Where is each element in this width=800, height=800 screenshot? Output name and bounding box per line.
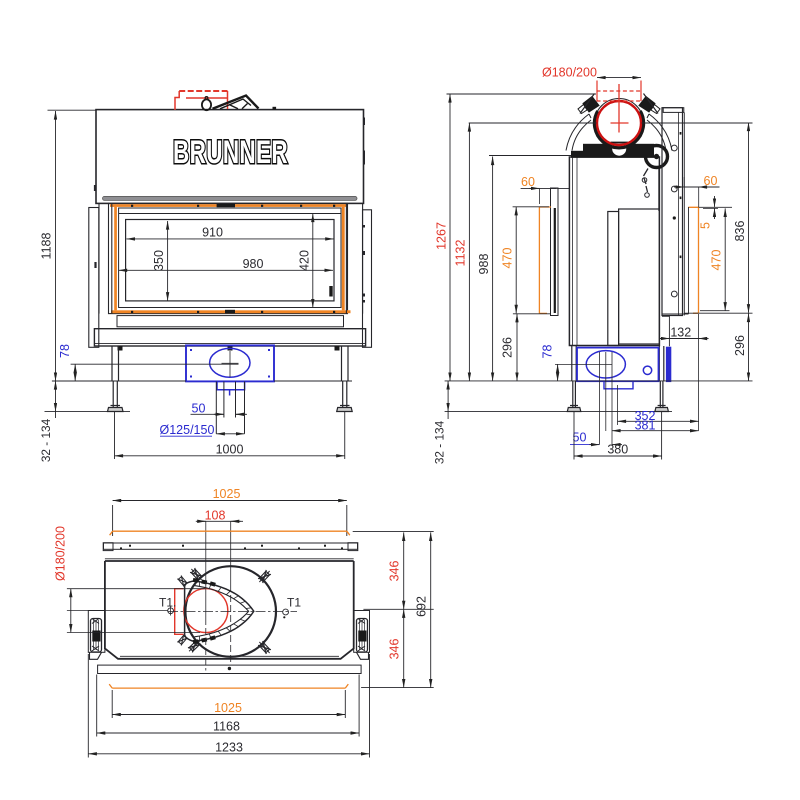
svg-text:T1.: T1. bbox=[159, 596, 176, 610]
svg-text:692: 692 bbox=[414, 596, 428, 617]
svg-text:1233: 1233 bbox=[215, 740, 243, 754]
svg-text:Ø180/200: Ø180/200 bbox=[542, 66, 597, 80]
svg-text:1188: 1188 bbox=[40, 233, 54, 260]
svg-text:380: 380 bbox=[607, 443, 628, 457]
svg-text:470: 470 bbox=[710, 250, 724, 271]
svg-text:296: 296 bbox=[733, 335, 747, 356]
svg-text:980: 980 bbox=[243, 257, 264, 271]
svg-text:346: 346 bbox=[387, 561, 401, 582]
svg-text:78: 78 bbox=[58, 344, 72, 358]
svg-text:988: 988 bbox=[477, 254, 491, 275]
svg-text:1025: 1025 bbox=[213, 487, 241, 501]
svg-text:296: 296 bbox=[501, 337, 515, 358]
svg-text:BRUNNER: BRUNNER bbox=[173, 134, 288, 170]
svg-text:50: 50 bbox=[192, 402, 206, 416]
svg-text:346: 346 bbox=[387, 639, 401, 660]
svg-text:910: 910 bbox=[202, 226, 223, 240]
svg-text:470: 470 bbox=[501, 248, 515, 269]
svg-text:381: 381 bbox=[635, 418, 656, 432]
svg-text:32 - 134: 32 - 134 bbox=[39, 418, 53, 462]
svg-text:1267: 1267 bbox=[434, 222, 448, 250]
svg-text:1000: 1000 bbox=[216, 443, 244, 457]
svg-text:78: 78 bbox=[541, 345, 555, 359]
svg-text:50: 50 bbox=[573, 431, 587, 445]
svg-text:Ø180/200: Ø180/200 bbox=[54, 526, 68, 581]
svg-text:60: 60 bbox=[704, 174, 718, 188]
svg-text:108: 108 bbox=[205, 508, 226, 522]
svg-text:1025: 1025 bbox=[214, 701, 242, 715]
svg-text:420: 420 bbox=[298, 250, 312, 271]
svg-text:132: 132 bbox=[670, 325, 691, 339]
svg-text:350: 350 bbox=[152, 250, 166, 271]
svg-text:1168: 1168 bbox=[213, 720, 240, 734]
svg-text:60: 60 bbox=[521, 175, 535, 189]
svg-text:5: 5 bbox=[699, 222, 713, 229]
svg-text:T1: T1 bbox=[287, 596, 301, 610]
svg-text:836: 836 bbox=[733, 221, 747, 242]
svg-text:32 - 134: 32 - 134 bbox=[433, 420, 447, 464]
svg-text:Ø125/150: Ø125/150 bbox=[160, 423, 215, 437]
svg-text:1132: 1132 bbox=[454, 240, 468, 267]
